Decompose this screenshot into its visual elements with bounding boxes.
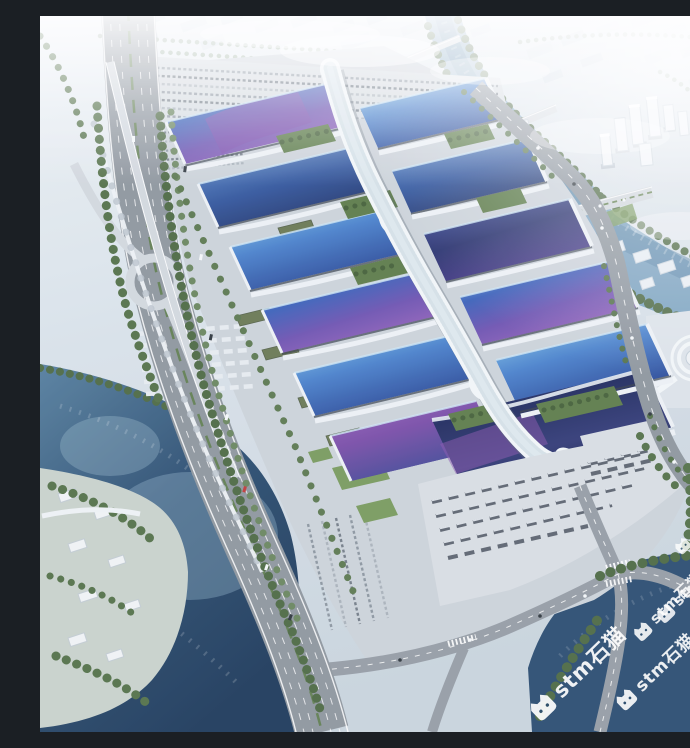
haze-overlay (40, 16, 690, 732)
aerial-rendering-exhibition-center: stm石猫 stm石猫 stm石猫 stm石猫 stm石猫 (40, 16, 690, 732)
